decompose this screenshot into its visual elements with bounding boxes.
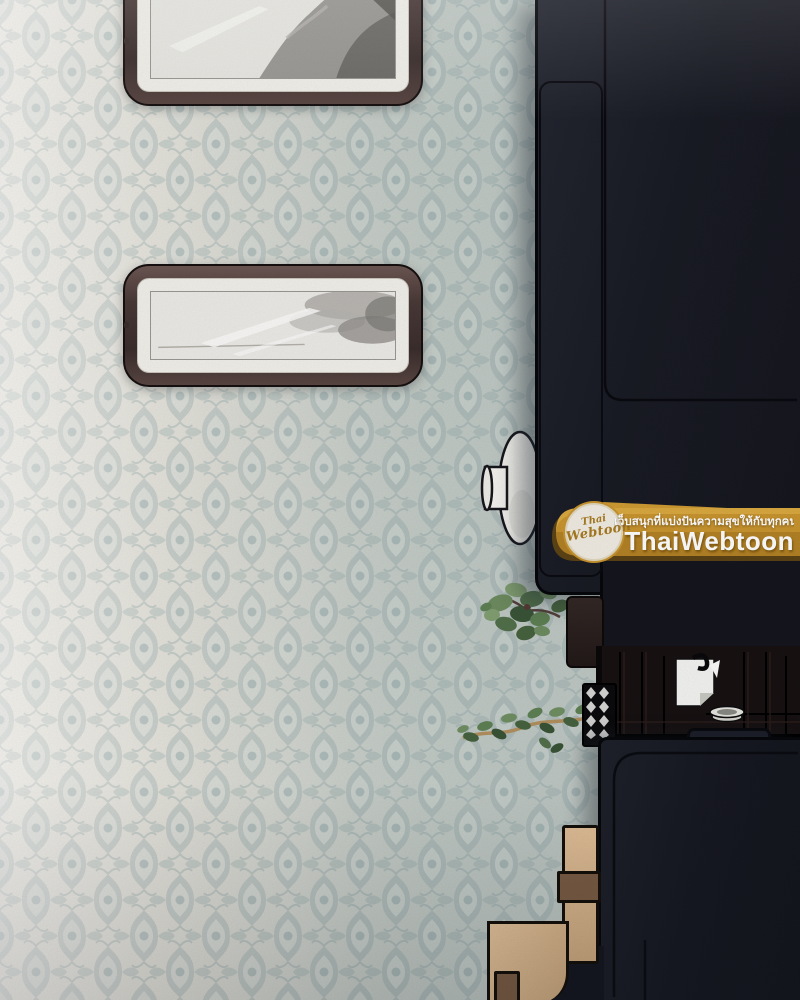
painting-mat xyxy=(137,0,409,92)
ink-landscape-art xyxy=(150,0,396,79)
trailing-vine xyxy=(455,685,603,760)
wood-chair-arm-patch xyxy=(557,871,601,903)
wood-chair-back-patch xyxy=(494,971,520,1000)
thaiwebtoon-watermark: Thai Webtoon เว็บสนุกที่แบ่งปันความสุขให… xyxy=(548,494,800,574)
frame-hook xyxy=(124,322,129,328)
webtoon-panel: Thai Webtoon เว็บสนุกที่แบ่งปันความสุขให… xyxy=(0,0,800,1000)
watermark-brand: ThaiWebtoon xyxy=(594,526,794,557)
painting-mat xyxy=(137,278,409,373)
framed-painting-bottom xyxy=(123,264,423,387)
lattice-pattern xyxy=(584,685,611,741)
framed-painting-top xyxy=(123,0,423,106)
wood-chair-back xyxy=(487,921,569,1000)
sofa-bottom-seams xyxy=(598,737,800,1000)
misty-landscape-art xyxy=(150,291,396,360)
frame-hook xyxy=(124,38,129,44)
